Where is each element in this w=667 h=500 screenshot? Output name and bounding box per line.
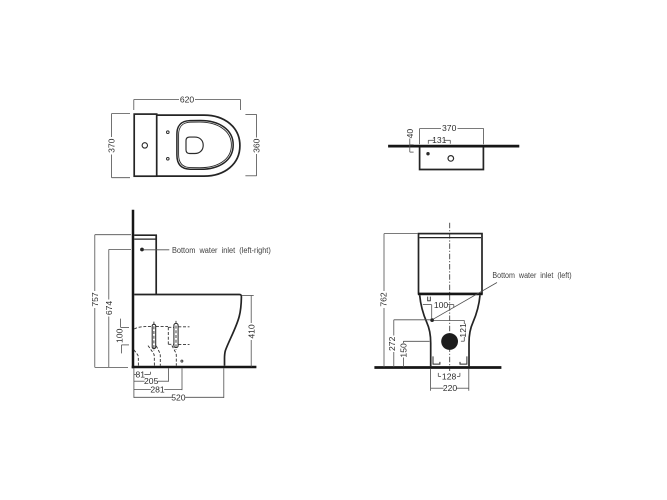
svg-text:520: 520 <box>171 392 186 402</box>
svg-text:370: 370 <box>442 123 457 133</box>
svg-text:410: 410 <box>246 324 256 339</box>
svg-text:762: 762 <box>379 292 389 307</box>
svg-text:128: 128 <box>442 372 457 382</box>
svg-text:150: 150 <box>398 343 408 358</box>
svg-text:Bottom water inlet (left-right: Bottom water inlet (left-right) <box>172 246 271 255</box>
svg-text:281: 281 <box>150 385 165 395</box>
svg-text:620: 620 <box>180 95 195 105</box>
svg-text:121: 121 <box>458 323 468 338</box>
svg-text:360: 360 <box>252 138 262 153</box>
svg-text:40: 40 <box>405 129 415 139</box>
svg-text:370: 370 <box>107 138 117 153</box>
svg-text:220: 220 <box>443 383 458 393</box>
svg-text:757: 757 <box>90 292 100 307</box>
svg-text:100: 100 <box>434 300 449 310</box>
svg-text:100: 100 <box>115 328 125 343</box>
svg-text:131: 131 <box>432 135 447 145</box>
svg-text:272: 272 <box>387 336 397 351</box>
svg-text:674: 674 <box>104 301 114 316</box>
svg-text:Bottom water inlet (left): Bottom water inlet (left) <box>492 271 572 280</box>
